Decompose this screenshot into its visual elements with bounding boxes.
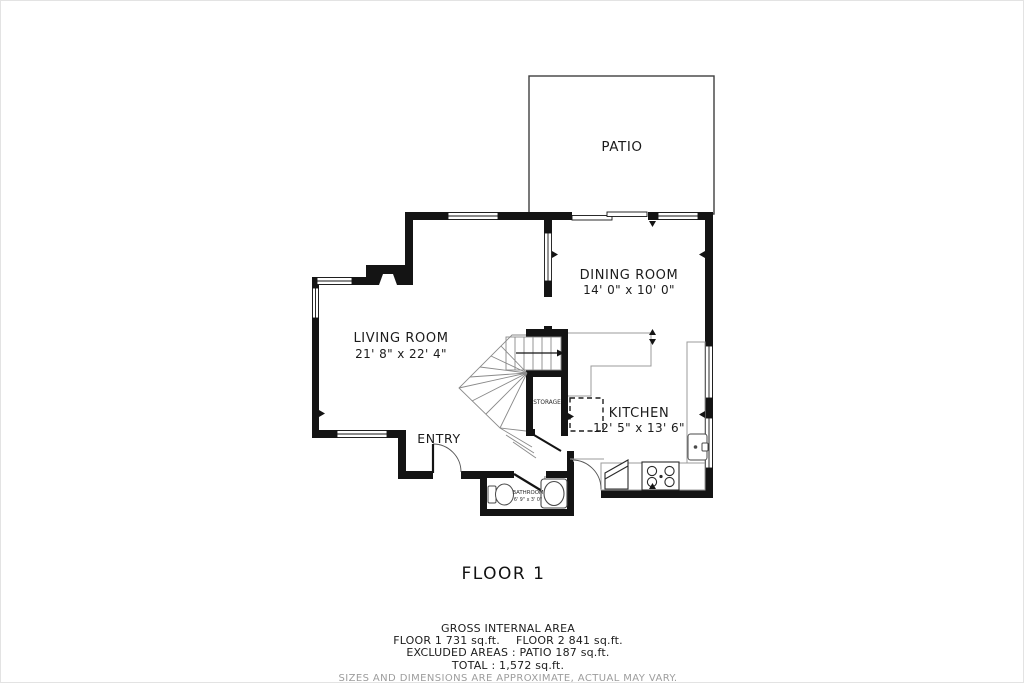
sink-fixture	[688, 434, 708, 460]
floor-title: FLOOR 1	[1, 564, 1006, 584]
window-kitchen-right-upper	[706, 346, 713, 398]
window-living-bottom	[337, 431, 387, 438]
window-top-living	[448, 213, 498, 220]
floor1-area: FLOOR 1 731 sq.ft.	[393, 634, 500, 647]
entry-label: ENTRY	[417, 431, 460, 446]
bathtub-fixture	[541, 479, 567, 508]
excluded-areas-line: EXCLUDED AREAS : PATIO 187 sq.ft.	[1, 647, 1015, 659]
area-summary: GROSS INTERNAL AREA FLOOR 1 731 sq.ft.FL…	[1, 623, 1015, 683]
sliding-door	[572, 212, 648, 221]
floorplan-page: PATIO DINING ROOM 14' 0" x 10' 0" LIVING…	[0, 0, 1024, 683]
dining-room-label: DINING ROOM	[580, 268, 679, 283]
bathroom-door	[514, 474, 545, 491]
bathroom-label: BATHROOM	[512, 490, 544, 496]
kitchen-dimensions: 12' 5" x 13' 6"	[593, 421, 685, 435]
dining-room-dimensions: 14' 0" x 10' 0"	[583, 283, 675, 297]
window-living-left	[313, 288, 319, 318]
stove-burners	[642, 462, 679, 490]
storage-door	[534, 435, 561, 451]
kitchen-label: KITCHEN	[609, 406, 670, 421]
living-room-label: LIVING ROOM	[353, 331, 448, 346]
storage-label: STORAGE	[533, 400, 561, 406]
gross-internal-area-title: GROSS INTERNAL AREA	[1, 623, 1015, 635]
window-living-topleft	[317, 278, 352, 285]
kitchen-door	[570, 459, 604, 490]
patio-label: PATIO	[601, 139, 642, 155]
entry-door	[433, 444, 461, 473]
toilet-fixture	[488, 484, 514, 505]
total-area-line: TOTAL : 1,572 sq.ft.	[1, 660, 1015, 672]
bathroom-dimensions: 6' 9" x 3' 0"	[514, 497, 542, 503]
window-divider	[545, 233, 552, 281]
window-top-dining	[658, 213, 698, 220]
floor2-area: FLOOR 2 841 sq.ft.	[516, 634, 623, 647]
disclaimer-line: SIZES AND DIMENSIONS ARE APPROXIMATE, AC…	[1, 673, 1015, 683]
living-room-dimensions: 21' 8" x 22' 4"	[355, 347, 447, 361]
